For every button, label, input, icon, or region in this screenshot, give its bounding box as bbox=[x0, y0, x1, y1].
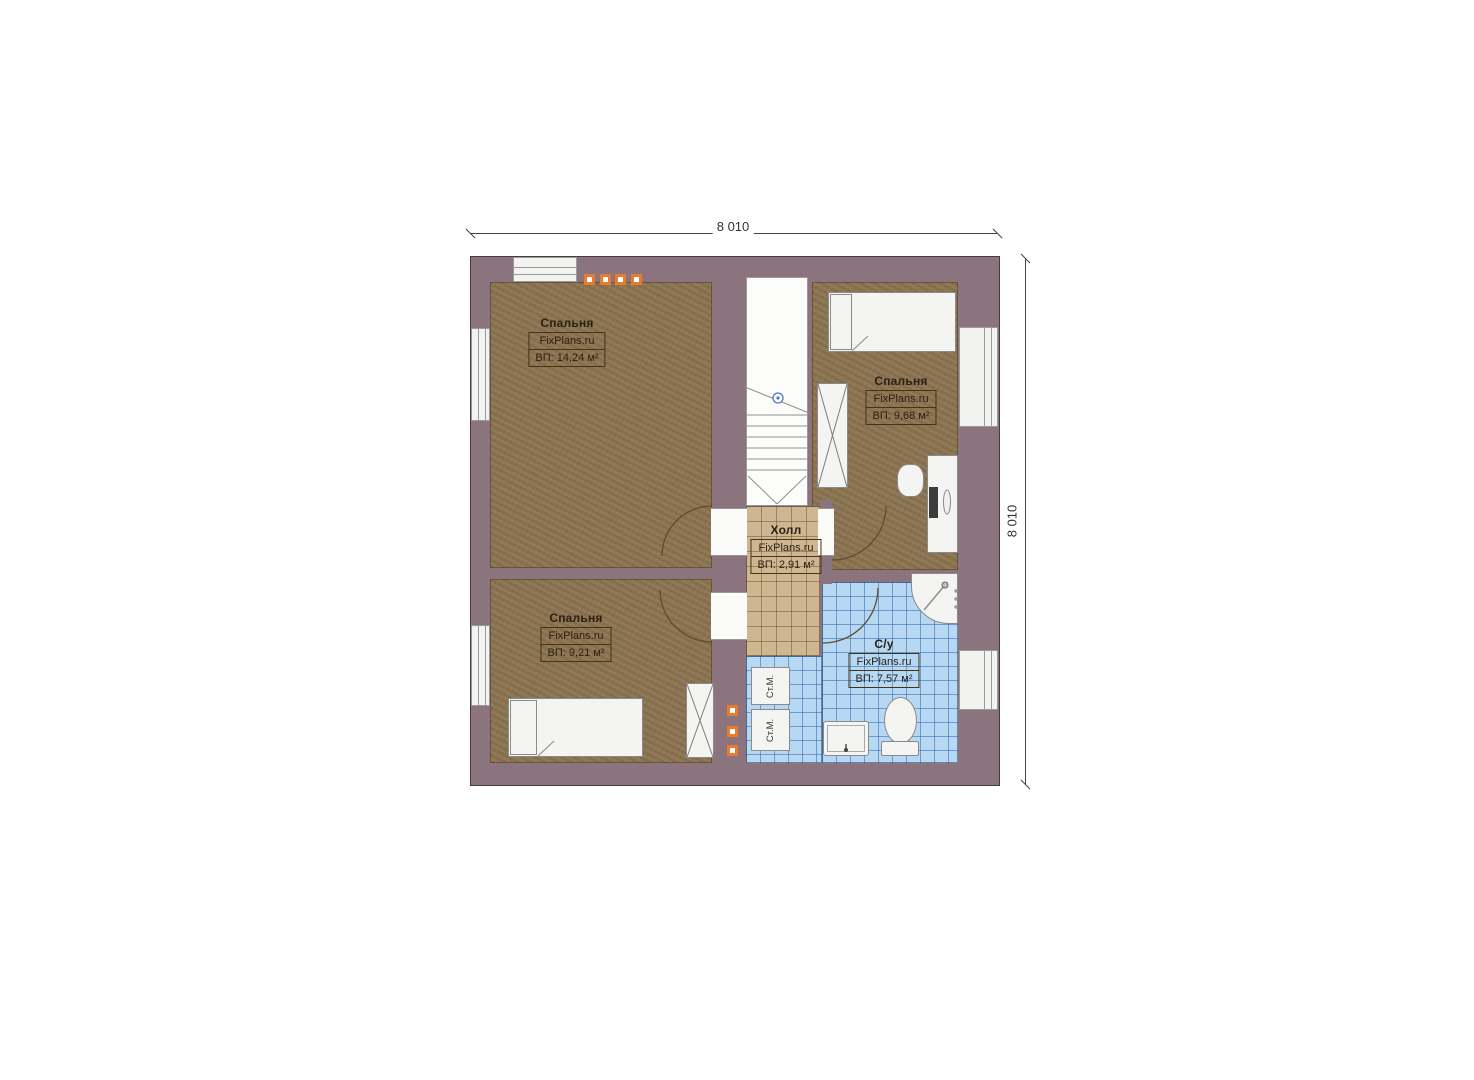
dimension-label-right: 8 010 bbox=[1005, 501, 1020, 542]
room-name: Спальня bbox=[528, 316, 605, 330]
washing-machine-label: Ст.М. bbox=[765, 718, 776, 741]
room-area: ВП: 14,24 м² bbox=[529, 350, 604, 366]
window-frame bbox=[514, 267, 576, 275]
room-area: ВП: 2,91 м² bbox=[751, 557, 820, 573]
room-brand: FixPlans.ru bbox=[751, 540, 820, 557]
toilet-tank bbox=[881, 741, 919, 756]
bedroom-3-doorway bbox=[711, 592, 747, 640]
window-frame bbox=[478, 626, 486, 705]
washing-machine-label: Ст.М. bbox=[765, 674, 776, 697]
room-name: Холл bbox=[750, 523, 821, 537]
window-frame bbox=[984, 651, 992, 709]
fixture-square bbox=[631, 274, 642, 285]
room-area: ВП: 9,68 м² bbox=[866, 408, 935, 424]
chair bbox=[897, 464, 924, 497]
wardrobe-bedroom-3 bbox=[686, 683, 714, 758]
bedroom-1-doorway bbox=[711, 508, 747, 556]
room-area: ВП: 9,21 м² bbox=[541, 645, 610, 661]
room-info-box: FixPlans.ru ВП: 2,91 м² bbox=[750, 539, 821, 574]
fixture-square bbox=[584, 274, 595, 285]
room-info-box: FixPlans.ru ВП: 14,24 м² bbox=[528, 332, 605, 367]
fixture-square bbox=[600, 274, 611, 285]
window-frame bbox=[478, 329, 486, 420]
fixture-square bbox=[727, 726, 738, 737]
room-name: С/у bbox=[848, 637, 919, 651]
window-right-1 bbox=[959, 327, 998, 427]
room-brand: FixPlans.ru bbox=[866, 391, 935, 408]
window-left-1 bbox=[471, 328, 490, 421]
room-label-bedroom-3: Спальня FixPlans.ru ВП: 9,21 м² bbox=[540, 611, 611, 662]
desk bbox=[927, 455, 958, 553]
dimension-label-top: 8 010 bbox=[713, 219, 754, 234]
toilet-bowl bbox=[884, 697, 917, 744]
window-frame bbox=[984, 328, 992, 426]
room-brand: FixPlans.ru bbox=[849, 654, 918, 671]
sink-basin bbox=[827, 725, 865, 752]
room-label-hall: Холл FixPlans.ru ВП: 2,91 м² bbox=[750, 523, 821, 574]
stairwell bbox=[746, 277, 808, 506]
washing-machine-2: Ст.М. bbox=[751, 709, 790, 751]
window-top bbox=[513, 257, 577, 282]
bed-pillow bbox=[510, 700, 537, 755]
floorplan-canvas: 8 010 8 010 Ст.М. Ст.М. bbox=[0, 0, 1474, 1080]
washing-machine-1: Ст.М. bbox=[751, 667, 790, 705]
room-label-bedroom-2: Спальня FixPlans.ru ВП: 9,68 м² bbox=[865, 374, 936, 425]
room-info-box: FixPlans.ru ВП: 9,68 м² bbox=[865, 390, 936, 425]
room-info-box: FixPlans.ru ВП: 9,21 м² bbox=[540, 627, 611, 662]
closet-bedroom-2 bbox=[817, 383, 848, 488]
room-area: ВП: 7,57 м² bbox=[849, 671, 918, 687]
room-info-box: FixPlans.ru ВП: 7,57 м² bbox=[848, 653, 919, 688]
room-name: Спальня bbox=[865, 374, 936, 388]
room-name: Спальня bbox=[540, 611, 611, 625]
dimension-line-right bbox=[1025, 258, 1026, 785]
fixture-square bbox=[615, 274, 626, 285]
window-right-2 bbox=[959, 650, 998, 710]
room-label-bathroom: С/у FixPlans.ru ВП: 7,57 м² bbox=[848, 637, 919, 688]
fixture-square bbox=[727, 745, 738, 756]
window-left-2 bbox=[471, 625, 490, 706]
fixture-square bbox=[727, 705, 738, 716]
room-brand: FixPlans.ru bbox=[529, 333, 604, 350]
room-label-bedroom-1: Спальня FixPlans.ru ВП: 14,24 м² bbox=[528, 316, 605, 367]
room-brand: FixPlans.ru bbox=[541, 628, 610, 645]
bed-pillow bbox=[830, 294, 852, 350]
sink bbox=[823, 721, 869, 756]
